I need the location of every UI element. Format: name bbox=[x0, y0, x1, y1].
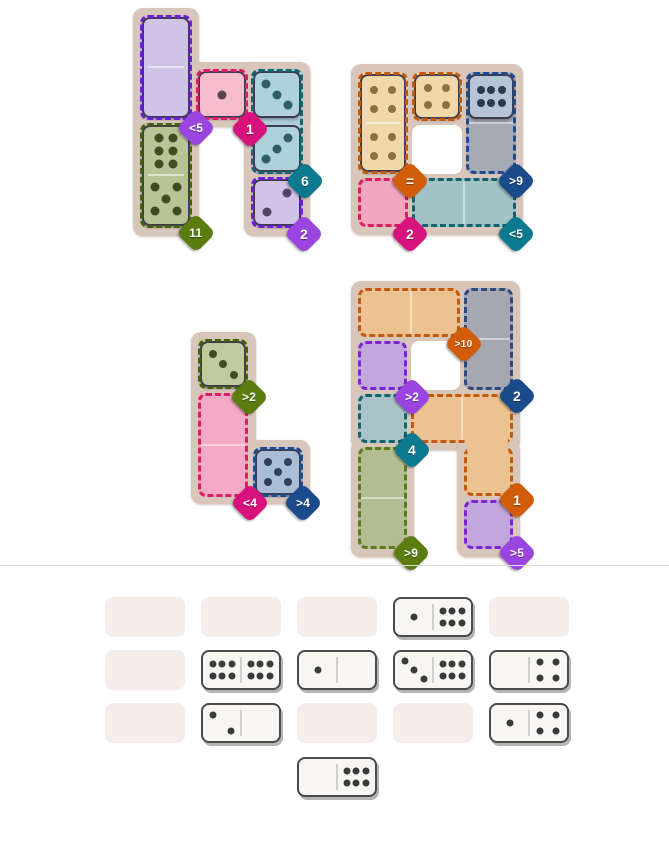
domino-half bbox=[299, 759, 337, 795]
constraint-badge-label: <4 bbox=[243, 496, 257, 510]
board-tile[interactable] bbox=[142, 17, 190, 118]
tile-divider bbox=[148, 174, 184, 176]
constraint-badge-label: >9 bbox=[404, 546, 418, 560]
constraint-badge-label: 11 bbox=[189, 226, 202, 240]
cell-divider bbox=[461, 397, 463, 440]
domino-divider bbox=[528, 710, 530, 736]
board-tile[interactable] bbox=[198, 71, 246, 118]
pip bbox=[169, 160, 178, 169]
board-tile[interactable] bbox=[255, 449, 301, 495]
pip bbox=[284, 458, 292, 466]
domino-divider bbox=[528, 657, 530, 683]
domino-half bbox=[433, 599, 471, 635]
tray-slot-empty bbox=[489, 597, 569, 637]
pip bbox=[262, 79, 271, 88]
pip bbox=[353, 780, 360, 787]
constraint-badge-label: 6 bbox=[301, 173, 309, 189]
cell-divider bbox=[360, 497, 405, 499]
tray-slot-empty bbox=[393, 703, 473, 743]
tile-half bbox=[470, 76, 512, 117]
tray-domino-2-0[interactable] bbox=[201, 703, 281, 743]
pip bbox=[273, 144, 282, 153]
pip bbox=[439, 660, 446, 667]
pip bbox=[439, 673, 446, 680]
pip bbox=[552, 674, 559, 681]
pip bbox=[401, 658, 408, 665]
pip bbox=[487, 99, 495, 107]
pip bbox=[151, 206, 160, 215]
tile-half bbox=[200, 73, 244, 116]
pip bbox=[169, 147, 178, 156]
pip bbox=[507, 720, 514, 727]
pip bbox=[537, 712, 544, 719]
pip bbox=[487, 86, 495, 94]
pip bbox=[151, 183, 160, 192]
tile-half bbox=[362, 123, 404, 170]
pip bbox=[162, 195, 171, 204]
domino-half bbox=[395, 599, 433, 635]
domino-half bbox=[203, 652, 241, 688]
pip bbox=[274, 468, 282, 476]
pip bbox=[284, 478, 292, 486]
pip bbox=[219, 673, 226, 680]
pip bbox=[498, 86, 506, 94]
pip bbox=[477, 86, 485, 94]
pip bbox=[439, 620, 446, 627]
domino-half bbox=[433, 652, 471, 688]
constraint-badge-label: = bbox=[406, 173, 414, 189]
pip bbox=[388, 86, 396, 94]
pip bbox=[552, 659, 559, 666]
pip bbox=[247, 660, 254, 667]
domino-half bbox=[491, 652, 529, 688]
pip bbox=[343, 767, 350, 774]
pip bbox=[315, 667, 322, 674]
board-tile[interactable] bbox=[360, 74, 406, 172]
pip bbox=[458, 607, 465, 614]
constraint-badge-label: >2 bbox=[405, 390, 419, 404]
tray-slot-empty bbox=[297, 597, 377, 637]
pip bbox=[424, 101, 432, 109]
constraint-badge-label: 2 bbox=[406, 226, 414, 242]
pip bbox=[388, 152, 396, 160]
pip bbox=[442, 101, 450, 109]
domino-half bbox=[337, 652, 375, 688]
pip bbox=[477, 99, 485, 107]
pip bbox=[458, 620, 465, 627]
pip bbox=[449, 607, 456, 614]
pip bbox=[209, 673, 216, 680]
constraint-badge-label: 4 bbox=[408, 442, 416, 458]
tray-domino-1-0[interactable] bbox=[297, 650, 377, 690]
pip bbox=[362, 780, 369, 787]
pip bbox=[370, 133, 378, 141]
region-orange-lower[interactable] bbox=[464, 447, 513, 496]
pip bbox=[537, 674, 544, 681]
pip bbox=[388, 105, 396, 113]
tile-half bbox=[257, 451, 299, 493]
domino-half bbox=[203, 705, 241, 741]
pip bbox=[552, 727, 559, 734]
domino-half bbox=[241, 705, 279, 741]
tile-half bbox=[144, 19, 188, 67]
domino-half bbox=[337, 759, 375, 795]
pip bbox=[362, 767, 369, 774]
domino-divider bbox=[240, 657, 242, 683]
pip bbox=[420, 676, 427, 683]
pip bbox=[257, 660, 264, 667]
domino-half bbox=[529, 652, 567, 688]
pip bbox=[228, 673, 235, 680]
tray-domino-1-4[interactable] bbox=[489, 703, 569, 743]
domino-divider bbox=[336, 657, 338, 683]
pip bbox=[388, 133, 396, 141]
tile-half bbox=[144, 175, 188, 223]
pip bbox=[370, 105, 378, 113]
board-tile[interactable] bbox=[253, 71, 301, 118]
pip bbox=[266, 660, 273, 667]
section-divider bbox=[0, 565, 669, 566]
tile-half bbox=[416, 76, 458, 117]
pip bbox=[169, 133, 178, 142]
pip bbox=[266, 673, 273, 680]
pip bbox=[284, 133, 293, 142]
tray-domino-1-6[interactable] bbox=[393, 597, 473, 637]
tray-slot-empty bbox=[201, 597, 281, 637]
pip bbox=[370, 86, 378, 94]
tray-slot-empty bbox=[105, 703, 185, 743]
domino-half bbox=[299, 652, 337, 688]
pip bbox=[449, 620, 456, 627]
pip bbox=[257, 673, 264, 680]
tile-half bbox=[202, 343, 244, 385]
domino-half bbox=[491, 705, 529, 741]
pip bbox=[458, 673, 465, 680]
pip bbox=[552, 712, 559, 719]
region-patch bbox=[467, 438, 508, 452]
pip bbox=[230, 371, 238, 379]
cell-divider bbox=[200, 444, 246, 446]
pip bbox=[209, 350, 217, 358]
pip bbox=[343, 780, 350, 787]
pip bbox=[442, 84, 450, 92]
pip bbox=[439, 607, 446, 614]
pip bbox=[449, 660, 456, 667]
game-stage: <516112=>92<5>2<4>4>10>2241>9>5 bbox=[0, 0, 669, 854]
tile-half bbox=[144, 67, 188, 115]
pip bbox=[264, 478, 272, 486]
tray-domino-3-6[interactable] bbox=[393, 650, 473, 690]
tile-half bbox=[362, 76, 404, 123]
domino-divider bbox=[432, 604, 434, 630]
pip bbox=[424, 84, 432, 92]
constraint-badge-label: <5 bbox=[509, 227, 523, 241]
region-purple-left[interactable] bbox=[358, 341, 407, 390]
pip bbox=[449, 673, 456, 680]
constraint-badge-label: >9 bbox=[509, 174, 523, 188]
pip bbox=[458, 660, 465, 667]
board-hole bbox=[412, 125, 462, 174]
pip bbox=[273, 90, 282, 99]
tile-half bbox=[255, 73, 299, 116]
constraint-badge-label: 2 bbox=[513, 388, 521, 404]
cell-divider bbox=[468, 122, 514, 124]
tile-divider bbox=[366, 122, 400, 124]
pip bbox=[537, 727, 544, 734]
pip bbox=[353, 767, 360, 774]
pip bbox=[172, 183, 181, 192]
tray-slot-empty bbox=[105, 650, 185, 690]
constraint-badge-label: 1 bbox=[246, 121, 254, 137]
cell-divider bbox=[410, 291, 412, 334]
pip bbox=[537, 659, 544, 666]
pip bbox=[172, 206, 181, 215]
pip bbox=[411, 614, 418, 621]
pip bbox=[411, 667, 418, 674]
tray-domino-6-6[interactable] bbox=[201, 650, 281, 690]
board-tile[interactable] bbox=[414, 74, 460, 119]
constraint-badge-label: 1 bbox=[513, 492, 521, 508]
pip bbox=[284, 101, 293, 110]
cell-divider bbox=[463, 181, 465, 224]
pip bbox=[264, 458, 272, 466]
pip bbox=[283, 188, 292, 197]
pip bbox=[218, 90, 227, 99]
constraint-badge-label: <5 bbox=[189, 121, 203, 135]
constraint-badge-label: >10 bbox=[455, 339, 473, 350]
domino-half bbox=[395, 652, 433, 688]
board-tile[interactable] bbox=[468, 74, 514, 119]
constraint-badge-label: >5 bbox=[510, 546, 524, 560]
constraint-badge-label: >2 bbox=[242, 390, 256, 404]
constraint-badge-label: 2 bbox=[300, 226, 308, 242]
board-tile[interactable] bbox=[200, 341, 246, 387]
board-tile[interactable] bbox=[142, 125, 190, 226]
tray-domino-0-6[interactable] bbox=[297, 757, 377, 797]
domino-divider bbox=[432, 657, 434, 683]
tile-divider bbox=[148, 66, 184, 68]
domino-divider bbox=[240, 710, 242, 736]
pip bbox=[498, 99, 506, 107]
tray-slot-empty bbox=[297, 703, 377, 743]
pip bbox=[227, 728, 234, 735]
pip bbox=[154, 133, 163, 142]
pip bbox=[209, 660, 216, 667]
domino-half bbox=[529, 705, 567, 741]
domino-divider bbox=[336, 764, 338, 790]
pip bbox=[154, 147, 163, 156]
tray-domino-0-4[interactable] bbox=[489, 650, 569, 690]
pip bbox=[219, 360, 227, 368]
pip bbox=[154, 160, 163, 169]
pip bbox=[262, 155, 271, 164]
pip bbox=[210, 711, 217, 718]
region-orange-top[interactable] bbox=[358, 288, 460, 337]
domino-half bbox=[241, 652, 279, 688]
pip bbox=[228, 660, 235, 667]
pip bbox=[247, 673, 254, 680]
constraint-badge-label: >4 bbox=[296, 496, 310, 510]
pip bbox=[370, 152, 378, 160]
pip bbox=[262, 208, 271, 217]
pip bbox=[219, 660, 226, 667]
tray-slot-empty bbox=[105, 597, 185, 637]
